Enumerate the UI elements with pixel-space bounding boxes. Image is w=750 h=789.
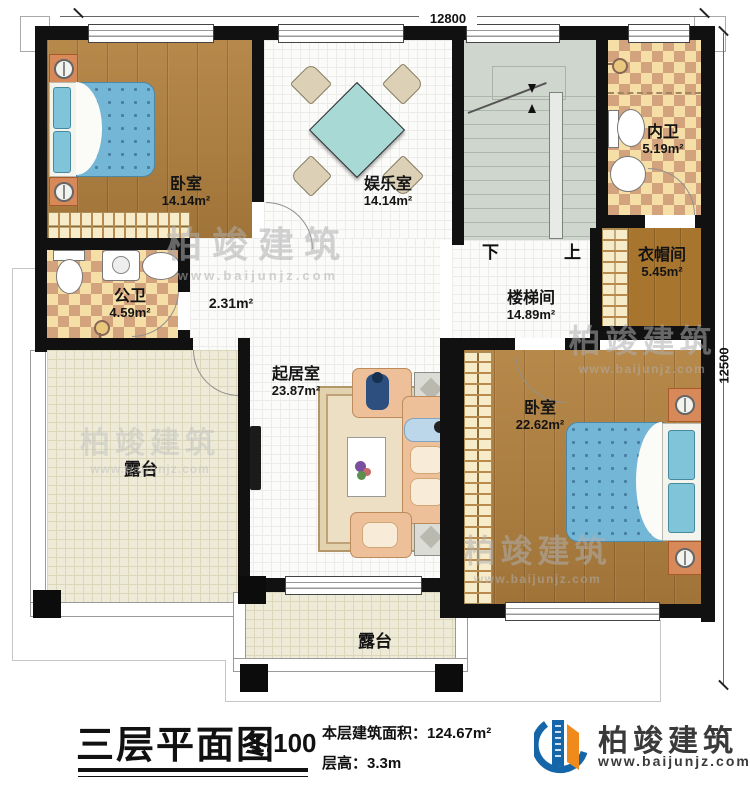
wall bbox=[565, 338, 600, 350]
washer-drum bbox=[112, 256, 130, 274]
title-underline bbox=[78, 768, 308, 772]
room-area: 23.87m² bbox=[272, 384, 320, 399]
flowers-icon bbox=[357, 471, 366, 480]
room-area: 14.14m² bbox=[364, 194, 412, 209]
wall bbox=[596, 26, 608, 218]
window bbox=[505, 602, 660, 621]
tv-icon bbox=[250, 426, 261, 490]
plan-title: 三层平面图 bbox=[76, 714, 276, 769]
wall bbox=[35, 338, 193, 350]
stairs-treads bbox=[464, 96, 596, 240]
terrace-bottom-floor bbox=[245, 592, 455, 668]
room-area: 2.31m² bbox=[209, 296, 253, 312]
title-underline bbox=[78, 776, 308, 777]
terrace-pillar bbox=[33, 590, 61, 618]
room-name: 公卫 bbox=[109, 288, 150, 306]
room-label-cloakroom: 衣帽间 5.45m² bbox=[638, 247, 686, 279]
room-name: 起居室 bbox=[272, 366, 320, 384]
site-boundary-line bbox=[12, 268, 13, 660]
room-label-living: 起居室 23.87m² bbox=[272, 366, 320, 398]
wall bbox=[252, 26, 264, 202]
window bbox=[278, 24, 404, 43]
room-area: 5.45m² bbox=[638, 265, 686, 280]
lamp-icon bbox=[675, 395, 695, 415]
terrace-pillar bbox=[240, 664, 268, 692]
dimension-line-top bbox=[60, 16, 710, 17]
room-name: 露台 bbox=[124, 460, 158, 479]
room-name: 衣帽间 bbox=[638, 247, 686, 265]
terrace-pillar bbox=[435, 664, 463, 692]
wall bbox=[695, 215, 715, 228]
coffee-table-icon bbox=[347, 437, 386, 497]
person-head bbox=[372, 372, 383, 383]
nightstand bbox=[668, 541, 702, 575]
wall bbox=[35, 238, 190, 250]
wall bbox=[452, 26, 464, 245]
wall bbox=[440, 338, 464, 618]
shower-head-icon bbox=[612, 58, 628, 74]
stair-up-label: 上 bbox=[564, 238, 581, 263]
terrace-railing bbox=[233, 658, 468, 672]
toilet-icon bbox=[617, 109, 645, 147]
pillow-icon bbox=[53, 87, 71, 129]
room-area: 4.59m² bbox=[109, 306, 150, 321]
shower-partition bbox=[608, 92, 701, 94]
wall bbox=[590, 326, 715, 340]
floor-area-text: 本层建筑面积：124.67m² bbox=[322, 722, 491, 743]
room-area: 22.62m² bbox=[516, 418, 564, 433]
sink-icon bbox=[610, 156, 646, 192]
closet-icon bbox=[464, 352, 492, 604]
wall bbox=[590, 228, 602, 338]
sofa-cushion bbox=[410, 478, 444, 506]
window bbox=[88, 24, 214, 43]
stairs-arrow bbox=[528, 84, 536, 93]
hanger-rack-icon bbox=[602, 228, 628, 328]
room-label-inner-bath: 内卫 5.19m² bbox=[642, 124, 683, 156]
floor-height-text: 层高：3.3m bbox=[322, 752, 401, 773]
stairs-arrow bbox=[528, 104, 536, 113]
room-label-public-bath: 公卫 4.59m² bbox=[109, 288, 150, 320]
stairs-stringer bbox=[549, 92, 563, 239]
room-area: 14.89m² bbox=[507, 308, 555, 323]
site-boundary-line bbox=[12, 660, 225, 661]
room-label-corridor: 2.31m² bbox=[209, 296, 253, 312]
room-name: 娱乐室 bbox=[364, 176, 412, 194]
site-boundary-line bbox=[225, 660, 226, 702]
lamp-icon bbox=[54, 182, 74, 202]
sink-icon bbox=[142, 252, 180, 280]
pillow-icon bbox=[53, 131, 71, 173]
room-label-bedroom-tl: 卧室 14.14m² bbox=[162, 176, 210, 208]
terrace-railing bbox=[30, 602, 244, 617]
room-area: 5.19m² bbox=[642, 142, 683, 157]
dimension-label-right: 12500 bbox=[717, 336, 732, 396]
room-area: 14.14m² bbox=[162, 194, 210, 209]
plan-scale: 1:100 bbox=[250, 728, 317, 759]
nightstand bbox=[668, 388, 702, 422]
wall bbox=[596, 215, 645, 228]
window bbox=[466, 24, 560, 43]
stair-down-label: 下 bbox=[482, 238, 499, 263]
lamp-icon bbox=[675, 548, 695, 568]
wall bbox=[238, 338, 250, 592]
room-name: 露台 bbox=[358, 632, 392, 651]
wall bbox=[701, 26, 715, 622]
toilet-icon bbox=[56, 259, 83, 294]
room-name: 卧室 bbox=[516, 400, 564, 418]
brand-logo-icon bbox=[534, 712, 592, 780]
wardrobe-icon bbox=[48, 212, 190, 241]
room-label-stairwell: 楼梯间 14.89m² bbox=[507, 290, 555, 322]
room-name: 楼梯间 bbox=[507, 290, 555, 308]
terrace-pillar bbox=[238, 576, 266, 604]
window-sliding-door bbox=[285, 576, 422, 595]
nightstand bbox=[49, 54, 78, 83]
site-boundary-line bbox=[225, 701, 660, 702]
window bbox=[628, 24, 690, 43]
room-label-bedroom-br: 卧室 22.62m² bbox=[516, 400, 564, 432]
wall bbox=[178, 238, 190, 292]
pillow-icon bbox=[668, 483, 695, 533]
wall bbox=[35, 26, 47, 352]
room-label-terrace-bottom: 露台 bbox=[358, 632, 392, 651]
terrace-railing bbox=[30, 350, 46, 608]
nightstand bbox=[49, 177, 78, 206]
pillow-icon bbox=[668, 430, 695, 480]
site-boundary-line bbox=[660, 620, 661, 702]
room-name: 卧室 bbox=[162, 176, 210, 194]
floor-drain-icon bbox=[94, 320, 110, 336]
site-boundary-line bbox=[12, 268, 36, 269]
brand-website: www.baijunjz.com bbox=[598, 753, 750, 769]
sofa-cushion bbox=[362, 522, 398, 548]
lamp-icon bbox=[54, 59, 74, 79]
room-label-terrace-left: 露台 bbox=[124, 460, 158, 479]
room-name: 内卫 bbox=[642, 124, 683, 142]
sofa-cushion bbox=[410, 446, 444, 474]
room-label-entertainment: 娱乐室 14.14m² bbox=[364, 176, 412, 208]
floor-plan-canvas: 12800 12500 bbox=[0, 0, 750, 789]
dimension-label-top: 12800 bbox=[419, 11, 477, 26]
